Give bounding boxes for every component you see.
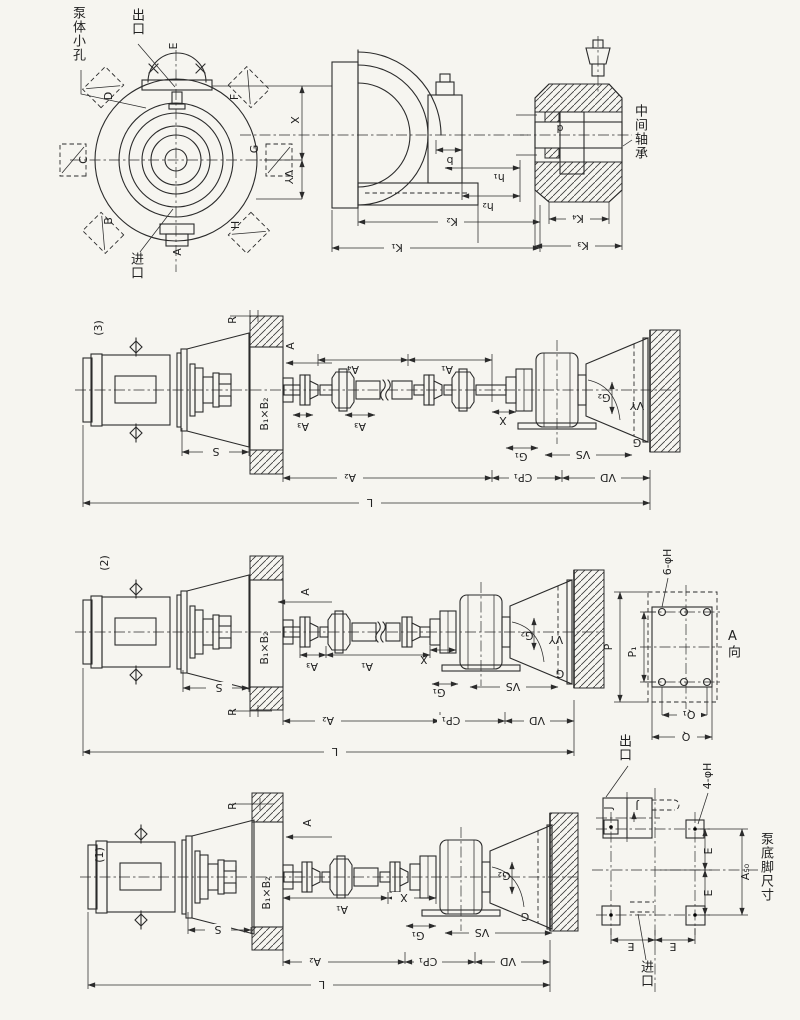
dim-label-vy-3: VY <box>630 399 645 412</box>
dim-label-b: b <box>446 154 453 167</box>
dim-label-e1: E <box>702 847 715 854</box>
dim-label-g1-3: G₁ <box>515 450 528 463</box>
dim-label-l-2: L <box>331 745 338 758</box>
port-label-c: C <box>77 156 90 164</box>
dim-label-x-1: X <box>400 891 408 904</box>
dim-label-b1b2-3: B₁×B₂ <box>258 397 271 430</box>
dim-label-q: Q <box>681 730 690 743</box>
dim-label-b1b2-1: B₁×B₂ <box>260 876 273 909</box>
dim-label-s-2: S <box>215 681 222 694</box>
port-label-a: A <box>171 248 184 256</box>
dim-label-b1b2-2: B₁×B₂ <box>258 631 271 664</box>
dim-label-e3: E <box>627 940 634 953</box>
dim-label-a3-2: A₃ <box>306 660 318 673</box>
dim-label-4-holes: 4-φH <box>701 763 714 790</box>
dim-label-a1-3: A₁ <box>441 363 453 376</box>
dim-label-a1-2: A₁ <box>361 660 373 673</box>
dim-label-a1-1: A₁ <box>336 903 348 916</box>
dim-label-vs-3: VS <box>576 448 591 461</box>
dim-label-6-holes: 6-φH <box>661 549 674 576</box>
port-label-h: H <box>229 221 242 229</box>
dim-label-j1: J <box>602 806 615 810</box>
dim-label-g1-2: G₁ <box>433 686 446 699</box>
dim-label-k3: K₃ <box>577 239 589 252</box>
dim-label-h1: h₁ <box>493 171 504 184</box>
dim-label-cp1-2: CP₁ <box>442 714 461 727</box>
casing-section-view: b h₁ h₂ K₂ K₁ <box>240 50 540 254</box>
drawing-canvas: E D F C G B H A X VY b h₁ h₂ K₂ K₁ d K₄ <box>0 0 800 1020</box>
callout-inlet-bottom: 进口 <box>639 960 652 988</box>
assembly-view-1: (1) R A B₁×B₂ S A₁ X G₁ G₂ G VS A₂ CP₁ V… <box>80 793 578 992</box>
port-label-d: D <box>102 92 115 100</box>
dim-label-s-1: S <box>214 923 221 936</box>
dim-label-x-front: X <box>288 116 301 124</box>
assembly-view-3: (3) R A B₁×B₂ S A₄ A₁ A₃ A₃ X G₁ G₂ VY G… <box>75 310 680 510</box>
dim-label-p1: P₁ <box>626 646 639 657</box>
dim-label-a4-3: A₄ <box>346 363 359 376</box>
callout-intermediate-bearing: 中间轴承 <box>633 104 646 160</box>
dim-label-r-1: R <box>226 802 239 810</box>
dim-label-vs-2: VS <box>506 680 521 693</box>
assembly-2-tag: (2) <box>98 555 111 571</box>
view-arrow-label-1: A <box>301 819 314 827</box>
view-arrow-label-3: A <box>284 342 297 350</box>
outlet-flange-view: J J <box>596 766 679 844</box>
dim-label-l-1: L <box>318 978 325 991</box>
dim-label-a2-2: A₂ <box>322 714 334 727</box>
dim-label-k1: K₁ <box>391 241 403 254</box>
dim-label-g2-2: G₂ <box>521 629 534 642</box>
dim-label-h2: h₂ <box>482 200 493 213</box>
view-arrow-label-2: A <box>299 588 312 596</box>
dim-label-g-1: G <box>521 910 530 923</box>
dim-label-vy-2: VY <box>549 633 564 646</box>
dim-label-k2: K₂ <box>446 215 458 228</box>
dim-label-e4: E <box>669 940 676 953</box>
callout-pump-body-small-hole: 泵体小孔 <box>71 6 84 62</box>
dim-label-a50: A₅₀ <box>739 863 752 880</box>
dim-label-k4: K₄ <box>572 212 584 225</box>
dim-label-x-3: X <box>499 414 507 427</box>
dim-label-l-3: L <box>366 496 373 509</box>
foot-plan-view: 4-φH E E A₅₀ E E <box>592 763 758 992</box>
assembly-1-tag: (1) <box>93 847 106 863</box>
dim-label-vd-2: VD <box>529 714 545 727</box>
dim-label-g2-3: G₂ <box>598 391 611 404</box>
port-label-b: B <box>102 217 115 225</box>
dim-label-a2-1: A₂ <box>309 955 321 968</box>
port-label-g: G <box>248 145 261 154</box>
port-label-e: E <box>167 42 180 49</box>
pump-installation-drawing-sheet: E D F C G B H A X VY b h₁ h₂ K₂ K₁ d K₄ <box>0 0 800 1020</box>
dim-label-r-3: R <box>226 316 239 324</box>
dim-label-j2: J <box>635 799 639 812</box>
assembly-3-tag: (3) <box>92 320 105 336</box>
callout-outlet-top: 出口 <box>130 8 143 36</box>
view-direction-label: A向 <box>726 629 739 659</box>
dim-label-e2: E <box>702 889 715 896</box>
dim-label-d: d <box>557 122 564 135</box>
dim-label-g-3: G <box>633 436 642 449</box>
caption-pump-foot-dimensions: 泵底脚尺寸 <box>759 832 772 902</box>
dim-label-a3b-3: A₃ <box>354 420 366 433</box>
dim-label-q1: Q₁ <box>682 708 695 721</box>
callout-outlet-bottom: 出口 <box>617 734 630 762</box>
dim-label-g1-1: G₁ <box>412 929 425 942</box>
dim-label-vy-front: VY <box>282 170 295 185</box>
dim-label-vs-1: VS <box>475 926 490 939</box>
callout-inlet-top: 进口 <box>129 252 142 280</box>
dim-label-a3a-3: A₃ <box>297 420 309 433</box>
dim-label-g2-1: G₂ <box>498 869 511 882</box>
dim-label-a2-3: A₂ <box>344 471 356 484</box>
port-label-f: F <box>228 94 241 100</box>
dim-label-s-3: S <box>212 445 219 458</box>
bearing-section-view: d K₄ K₃ <box>516 36 632 252</box>
dim-label-cp1-3: CP₁ <box>514 471 533 484</box>
dim-label-p: P <box>602 643 615 650</box>
dim-label-g-2: G <box>556 667 565 680</box>
dim-label-vd-1: VD <box>500 955 516 968</box>
dim-label-vd-3: VD <box>600 471 616 484</box>
assembly-view-2: (2) A R B₁×B₂ S A₃ A₁ X G₁ G₂ VY G VS A₂… <box>75 555 604 758</box>
casing-front-view: E D F C G B H A X VY <box>60 42 332 272</box>
dim-label-r-2: R <box>226 708 239 716</box>
flange-bolt-view: 6-φH P P₁ Q₁ Q <box>602 549 722 743</box>
dim-label-x-2: X <box>420 653 428 666</box>
dim-label-cp1-1: CP₁ <box>419 955 438 968</box>
